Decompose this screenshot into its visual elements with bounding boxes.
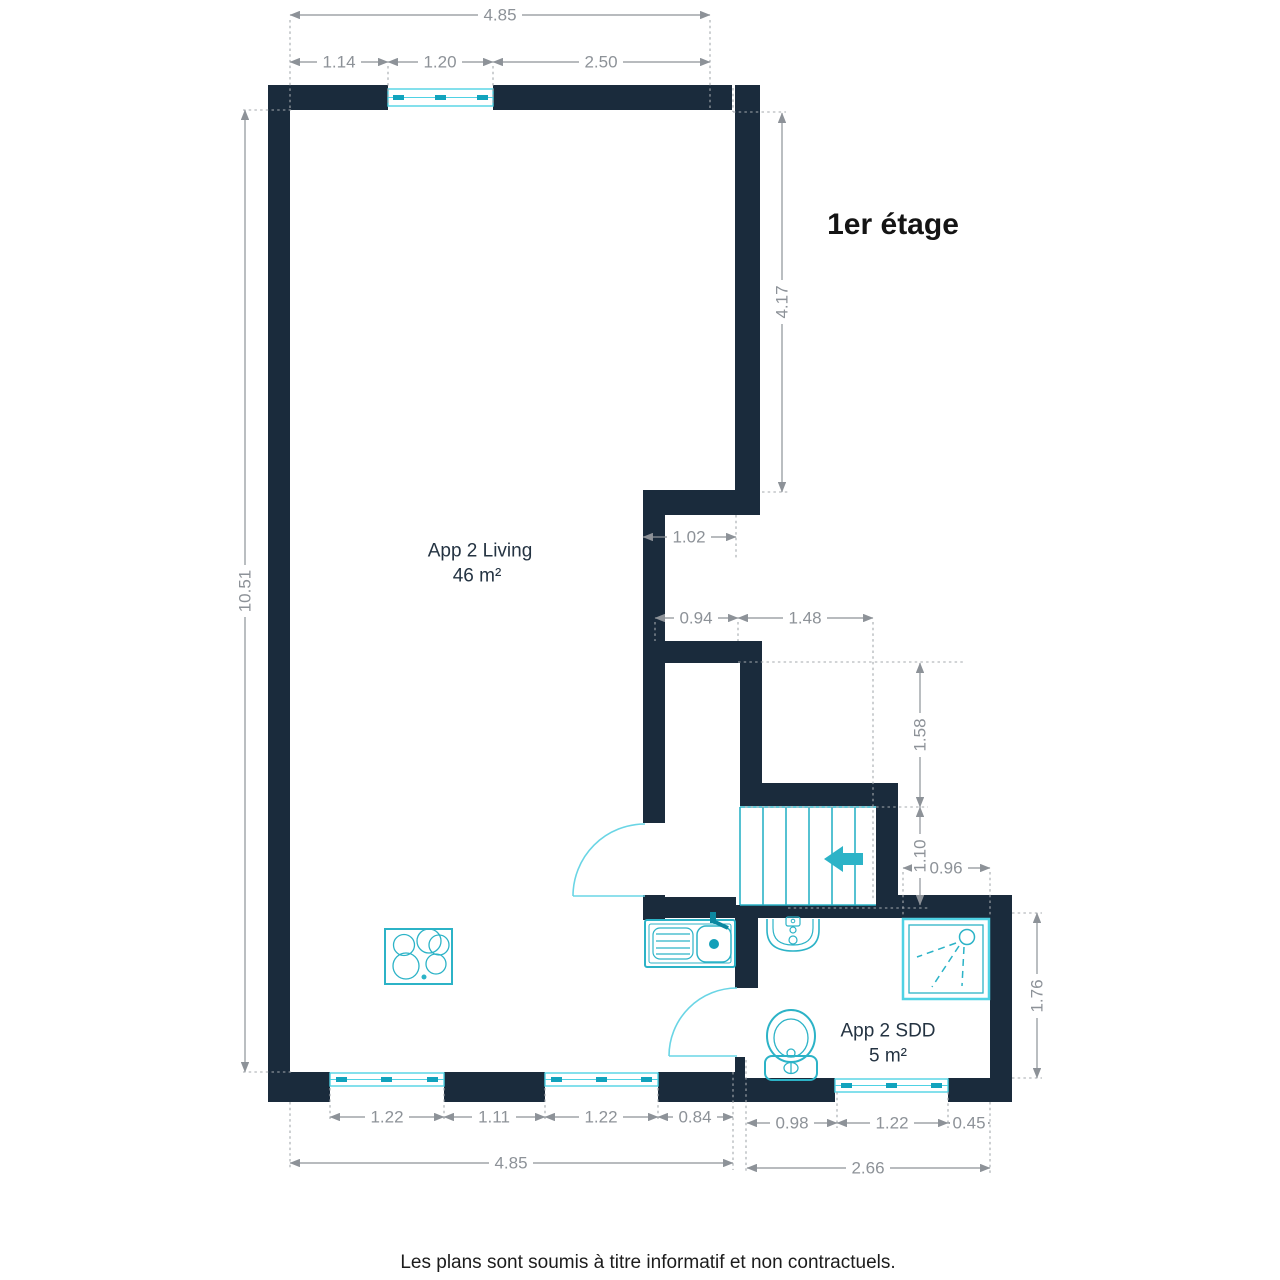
cooktop xyxy=(385,929,452,984)
dim-label: 1.48 xyxy=(788,609,821,628)
dim-label: 1.20 xyxy=(423,53,456,72)
wall-segment xyxy=(268,85,290,1102)
wall-segment xyxy=(658,1072,735,1102)
extension-lines xyxy=(243,20,1042,1175)
window-top xyxy=(388,89,493,106)
dim-label: 1.02 xyxy=(672,528,705,547)
dim-stair-a: 1.58 xyxy=(911,663,930,807)
dim-label: 1.58 xyxy=(911,718,930,751)
wall-segment xyxy=(643,897,736,918)
wall-segment xyxy=(735,905,878,918)
door-hall xyxy=(573,824,645,896)
dim-left-total: 10.51 xyxy=(236,110,255,1072)
shower xyxy=(903,919,989,999)
dim-top-c: 2.50 xyxy=(493,53,710,72)
wall-segment xyxy=(735,1057,745,1102)
wall-segment xyxy=(735,918,758,988)
dim-label: 1.10 xyxy=(911,839,930,872)
wall-segment xyxy=(740,641,762,806)
dim-bot-c: 1.22 xyxy=(545,1108,658,1127)
wall-segment xyxy=(493,85,732,110)
dim-sdd-height: 1.76 xyxy=(1028,913,1047,1078)
dim-label: 4.17 xyxy=(773,285,792,318)
window-bottom-right xyxy=(545,1073,658,1086)
room-label-living-name: App 2 Living xyxy=(428,541,533,562)
wall-segment xyxy=(876,783,898,908)
door-bathroom xyxy=(669,988,737,1056)
wall-segment xyxy=(990,895,1012,1102)
dim-label: 2.66 xyxy=(851,1159,884,1178)
disclaimer-text: Les plans sont soumis à titre informatif… xyxy=(400,1252,895,1273)
dim-sdd-b: 1.22 xyxy=(837,1114,948,1133)
dim-top-b: 1.20 xyxy=(388,53,493,72)
kitchen-sink xyxy=(645,912,735,967)
shower-spray xyxy=(917,943,964,987)
dim-bot-total: 4.85 xyxy=(290,1154,733,1173)
dim-label: 1.22 xyxy=(584,1108,617,1127)
window-bathroom xyxy=(835,1079,948,1092)
dim-label: 10.51 xyxy=(236,570,255,613)
wall-segment xyxy=(268,1072,330,1102)
room-label-living-area: 46 m² xyxy=(453,566,502,587)
room-label-sdd-area: 5 m² xyxy=(869,1046,907,1067)
dim-top-a: 1.14 xyxy=(290,53,388,72)
dim-label: 0.96 xyxy=(929,859,962,878)
washbasin xyxy=(767,917,819,951)
dim-label: 0.98 xyxy=(775,1114,808,1133)
wall-segment xyxy=(740,783,898,806)
dim-top-total: 4.85 xyxy=(290,6,710,25)
dim-label: 1.14 xyxy=(322,53,355,72)
dim-label: 1.22 xyxy=(875,1114,908,1133)
floor-plan-page: 4.85 1.14 1.20 2.50 10.51 4.17 1.02 xyxy=(0,0,1280,1280)
room-label-sdd-name: App 2 SDD xyxy=(840,1021,935,1042)
dim-label: 4.85 xyxy=(483,6,516,25)
floor-plan-drawing: 4.85 1.14 1.20 2.50 10.51 4.17 1.02 xyxy=(0,0,1280,1280)
dim-label: 4.85 xyxy=(494,1154,527,1173)
dim-label: 0.84 xyxy=(678,1108,711,1127)
dim-sdd-total: 2.66 xyxy=(747,1159,990,1178)
stair-direction-arrow xyxy=(824,846,863,872)
dim-label: 1.22 xyxy=(370,1108,403,1127)
window-bottom-left xyxy=(330,1073,444,1086)
toilet xyxy=(765,1010,817,1080)
dim-label: 1.11 xyxy=(478,1108,510,1127)
wall-segment xyxy=(745,1078,835,1102)
dim-stair-b: 1.10 xyxy=(911,807,930,905)
dim-sdd-a: 0.98 xyxy=(747,1114,837,1133)
dim-mid-a: 0.94 xyxy=(655,609,738,628)
wall-segment xyxy=(948,1078,1012,1102)
dim-upper-right: 4.17 xyxy=(773,113,792,492)
wall-segment xyxy=(735,85,760,515)
dim-bot-b: 1.11 xyxy=(444,1108,545,1127)
dim-label: 0.94 xyxy=(679,609,712,628)
sink-drain xyxy=(709,939,719,949)
dim-label: 0.45 xyxy=(952,1114,985,1133)
dim-mid-b: 1.48 xyxy=(738,609,873,628)
wall-segment xyxy=(444,1072,545,1102)
dim-sdd-c: 0.45 xyxy=(948,1114,990,1133)
dim-label: 2.50 xyxy=(584,53,617,72)
dim-bot-d: 0.84 xyxy=(658,1108,733,1127)
dim-bot-a: 1.22 xyxy=(330,1108,444,1127)
floor-title: 1er étage xyxy=(827,208,959,241)
dim-label: 1.76 xyxy=(1028,979,1047,1012)
staircase xyxy=(740,807,876,905)
cooktop-knob xyxy=(422,975,427,980)
